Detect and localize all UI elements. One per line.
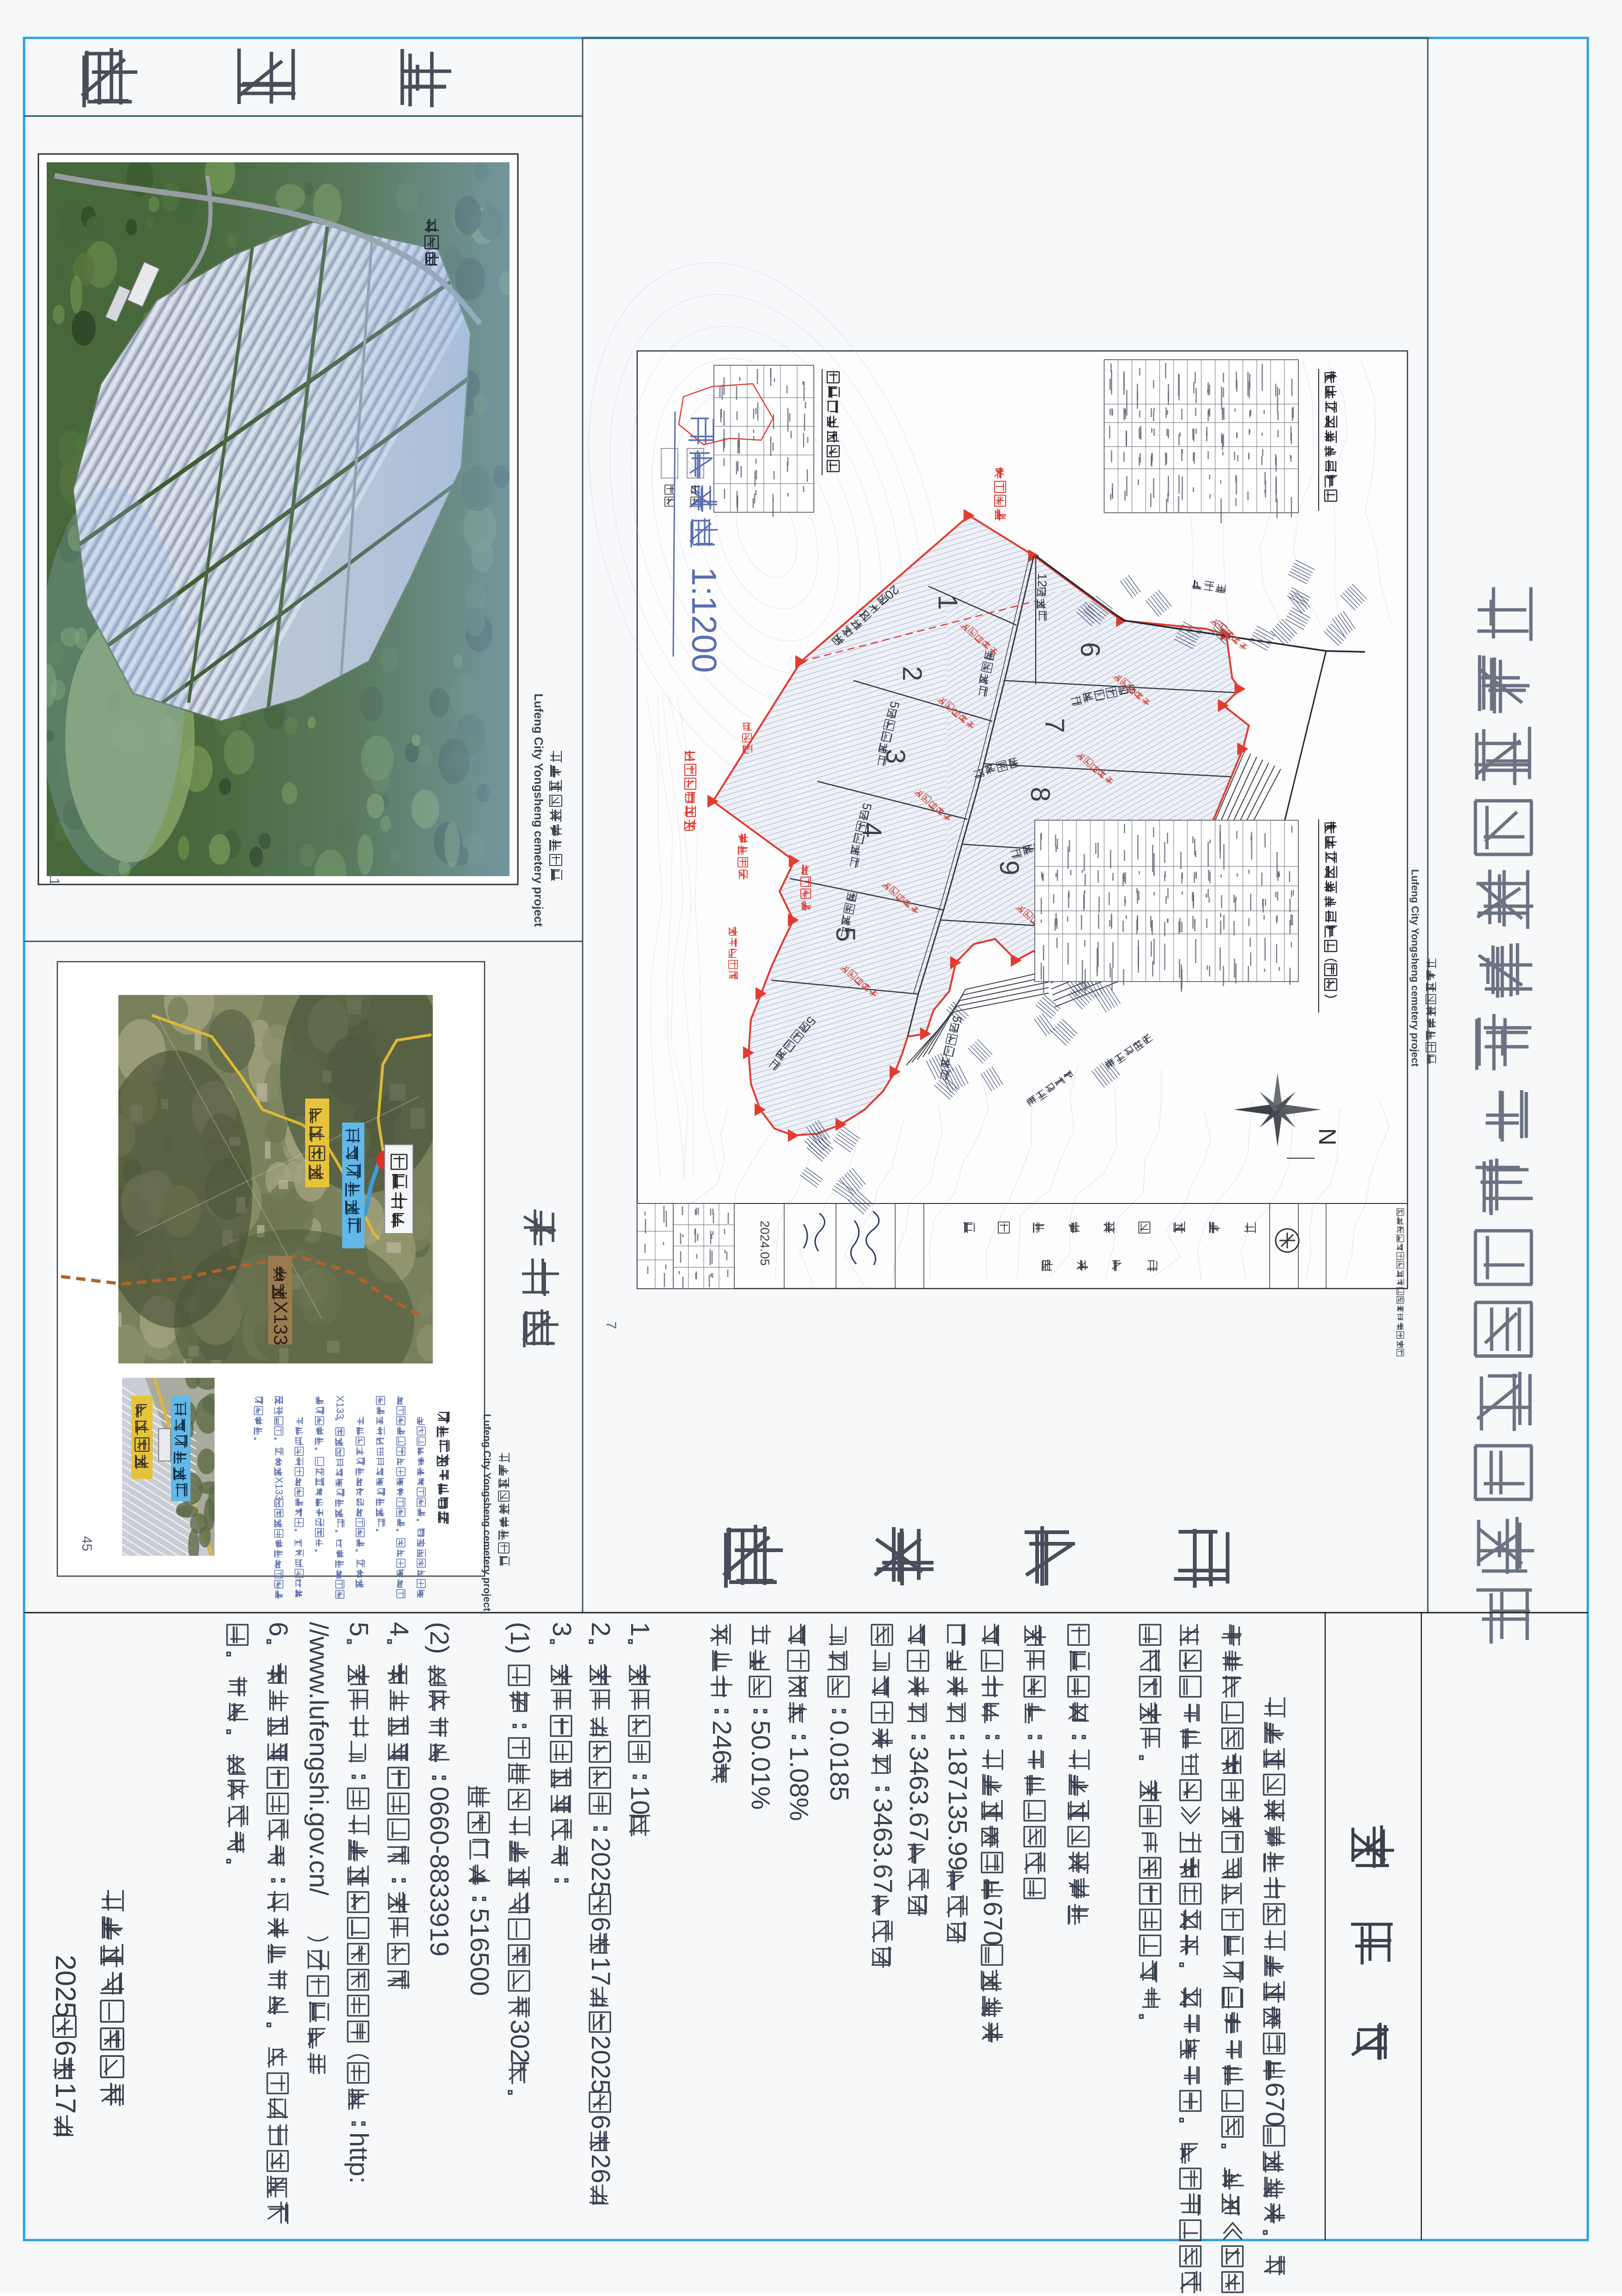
svg-text:6: 6 [1075, 642, 1105, 657]
svg-text:6: 6 [586, 2115, 615, 2130]
svg-text:5: 5 [344, 1622, 374, 1637]
svg-text:http:: http: [344, 2132, 374, 2184]
svg-text://www.lufengshi.gov.cn/: //www.lufengshi.gov.cn/ [304, 1622, 333, 1896]
svg-text:(1): (1) [505, 1622, 535, 1654]
svg-text:Lufeng City Yongsheng cemetery: Lufeng City Yongsheng cemetery project [1409, 869, 1421, 1067]
svg-text:9: 9 [994, 860, 1024, 875]
svg-text:26: 26 [586, 2154, 615, 2183]
svg-text:0660-8833919: 0660-8833919 [424, 1786, 454, 1957]
svg-text:X133: X133 [334, 1395, 346, 1419]
svg-text:187135.99: 187135.99 [943, 1746, 972, 1871]
svg-text:6: 6 [586, 1917, 615, 1932]
svg-text:2: 2 [897, 666, 927, 681]
svg-text:0.0185: 0.0185 [824, 1720, 854, 1801]
svg-text:(2): (2) [424, 1622, 454, 1654]
svg-text:X133: X133 [270, 1301, 291, 1345]
svg-text:17: 17 [586, 1957, 615, 1986]
svg-text:3463.67: 3463.67 [904, 1746, 934, 1842]
svg-text:50.01%: 50.01% [746, 1720, 775, 1810]
svg-text:4: 4 [384, 1622, 414, 1637]
svg-text:2025: 2025 [586, 1837, 615, 1896]
svg-text:1: 1 [933, 595, 963, 610]
svg-text:2024.05: 2024.05 [758, 1221, 772, 1266]
svg-text:2025: 2025 [50, 1955, 81, 2018]
svg-text:X133: X133 [273, 1477, 285, 1500]
svg-text:1:1200: 1:1200 [685, 567, 724, 673]
svg-text:6: 6 [50, 2040, 81, 2056]
svg-text:2: 2 [586, 1622, 615, 1637]
svg-text:12: 12 [1035, 573, 1049, 587]
svg-text:7: 7 [1039, 718, 1069, 733]
svg-text:670: 670 [978, 1902, 1008, 1946]
svg-text:45: 45 [79, 1536, 94, 1551]
svg-text:N: N [1314, 1128, 1340, 1146]
svg-text:6: 6 [264, 1622, 293, 1637]
svg-text:516500: 516500 [465, 1908, 494, 1996]
svg-text:10: 10 [625, 1786, 655, 1815]
svg-text:3463.67: 3463.67 [868, 1798, 897, 1893]
svg-text:8: 8 [1025, 787, 1055, 802]
svg-text:1: 1 [625, 1622, 655, 1637]
svg-text:11: 11 [47, 871, 62, 885]
svg-text:3: 3 [547, 1622, 577, 1637]
svg-text:Lufeng City Yongsheng cemetery: Lufeng City Yongsheng cemetery project [481, 1414, 493, 1612]
svg-text:7: 7 [603, 1321, 619, 1329]
svg-text:2025: 2025 [586, 2035, 615, 2094]
svg-text:246: 246 [707, 1720, 737, 1764]
svg-text:302: 302 [505, 2020, 535, 2063]
svg-text:Lufeng City Yongsheng cemetery: Lufeng City Yongsheng cemetery project [532, 694, 546, 927]
svg-text:1.08%: 1.08% [784, 1746, 814, 1821]
svg-text:17: 17 [50, 2082, 81, 2114]
svg-text:5: 5 [830, 927, 860, 942]
svg-text:670: 670 [1260, 2082, 1290, 2126]
